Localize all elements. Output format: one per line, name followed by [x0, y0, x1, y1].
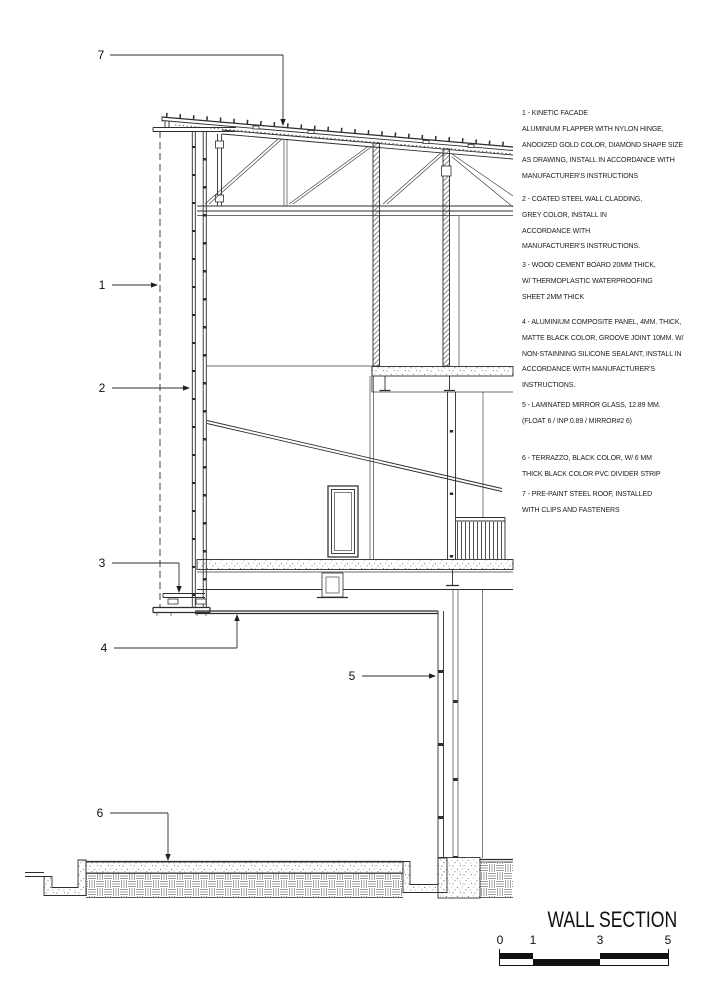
drainage-trench-right	[403, 858, 480, 899]
scale-label-1: 1	[530, 933, 537, 947]
callout-5: 5	[349, 669, 436, 683]
glass-wall	[438, 590, 483, 858]
scale-bar-end-tick	[668, 949, 669, 966]
note-2: 2 - COATED STEEL WALL CLADDING, GREY COL…	[522, 192, 707, 255]
truss-diagonals	[205, 139, 513, 207]
stair-handrail-line	[207, 421, 502, 492]
callout-4: 4	[101, 614, 240, 655]
scale-bar-segment	[500, 953, 533, 959]
truss-post	[284, 140, 287, 206]
upper-floor-slab	[197, 560, 513, 598]
note-1: 1 - KINETIC FACADE ALUMINIUM FLAPPER WIT…	[522, 106, 707, 185]
steel-column-hatched-2	[442, 149, 452, 366]
callout-1: 1	[99, 278, 158, 292]
steel-beam-hanger	[380, 376, 456, 391]
callout-5-label: 5	[349, 669, 356, 683]
scale-bar-graphic	[500, 952, 668, 966]
roof	[162, 115, 513, 154]
drawing-title: WALL SECTION	[547, 907, 677, 933]
scale-bar-segment	[600, 953, 668, 959]
note-4: 4 - ALUMINIUM COMPOSITE PANEL, 4MM. THIC…	[522, 315, 707, 394]
note-3: 3 - WOOD CEMENT BOARD 20MM THICK, W/ THE…	[522, 258, 707, 305]
callout-1-label: 1	[99, 278, 106, 292]
scale-bar: 0 1 3 5	[494, 933, 676, 975]
note-7: 7 - PRE-PAINT STEEL ROOF, INSTALLED WITH…	[522, 487, 707, 519]
beam-box	[317, 573, 348, 598]
column-finish-line	[370, 376, 374, 560]
drainage-trench-left	[44, 860, 86, 896]
scale-label-0: 0	[497, 933, 504, 947]
scale-bar-segment	[533, 959, 600, 965]
scale-bar-end-tick	[499, 949, 500, 966]
scale-label-3: 3	[597, 933, 604, 947]
callout-2: 2	[99, 381, 190, 395]
door-frame	[328, 486, 358, 557]
callout-4-label: 4	[101, 641, 108, 655]
wall-base-detail	[153, 594, 210, 617]
callout-7-label: 7	[98, 48, 105, 62]
column-footing	[438, 858, 480, 899]
steel-column-hatched-1	[373, 143, 380, 366]
truss-end-post	[216, 134, 224, 206]
outer-mullion-pair	[453, 590, 458, 858]
mezzanine-floor-slab	[206, 366, 513, 560]
note-5: 5 - LAMINATED MIRROR GLASS, 12.89 MM. (F…	[522, 398, 707, 430]
callout-2-label: 2	[99, 381, 106, 395]
scale-label-5: 5	[665, 933, 672, 947]
note-6: 6 - TERRAZZO, BLACK COLOR, W/ 6 MM THICK…	[522, 451, 707, 483]
railing	[456, 518, 505, 561]
callout-3-label: 3	[99, 556, 106, 570]
callout-6: 6	[97, 806, 171, 861]
callout-6-label: 6	[97, 806, 104, 820]
callout-7: 7	[98, 48, 286, 126]
callout-3: 3	[99, 556, 182, 593]
ceiling-soffit	[195, 611, 438, 614]
